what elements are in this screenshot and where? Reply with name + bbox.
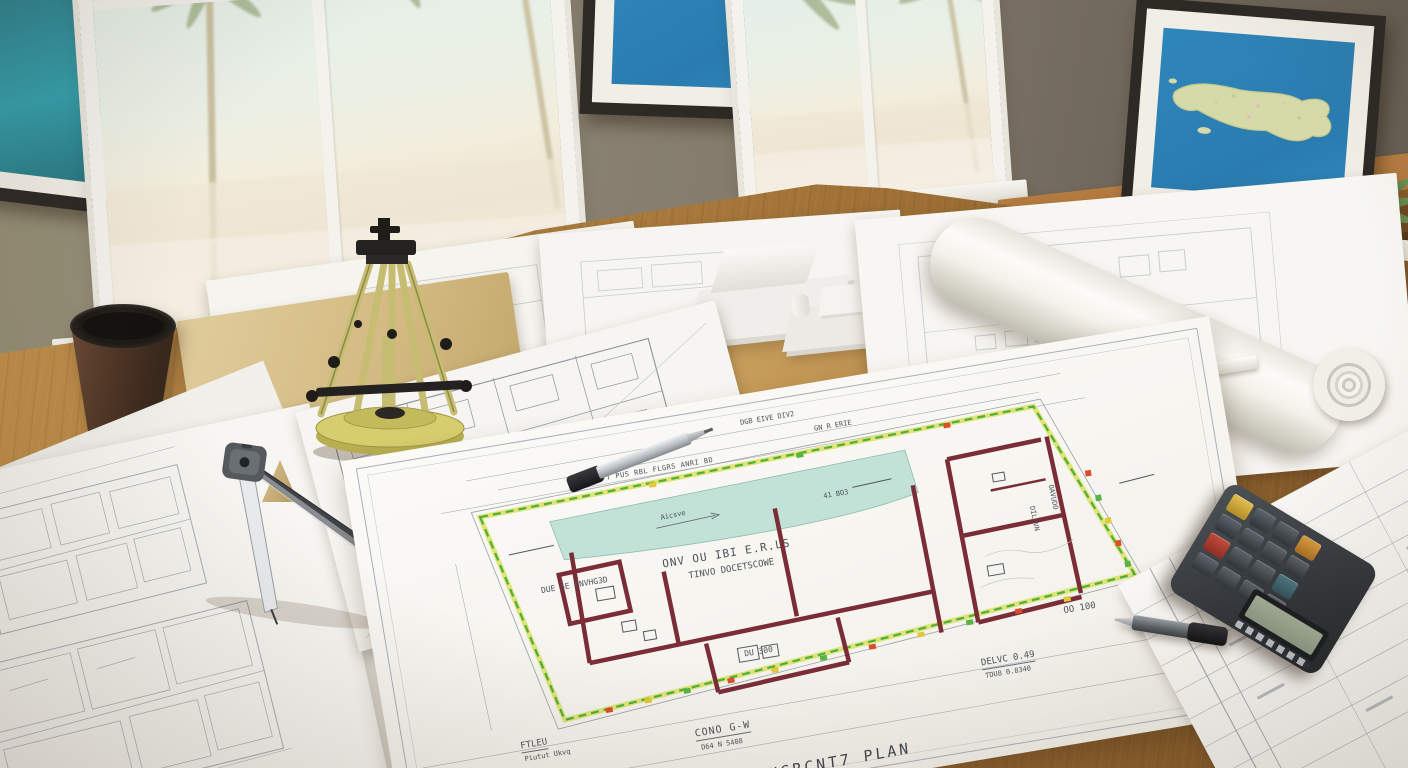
cup-lid-inner (82, 312, 164, 340)
pencil-lead (704, 428, 713, 434)
model-cylinder (791, 293, 810, 319)
survey-tripod (296, 216, 481, 464)
pen-grip (1186, 622, 1228, 647)
paper-roll-spiral-end (1313, 349, 1385, 421)
cup-lid (70, 304, 176, 348)
island-map (1151, 28, 1355, 203)
architect-desk-scene: ONV OU IBI E.R.LS TINVO DOCETSCOWE DUE 5… (0, 0, 1408, 768)
window-glass (741, 0, 994, 204)
island-shape (1152, 28, 1347, 192)
